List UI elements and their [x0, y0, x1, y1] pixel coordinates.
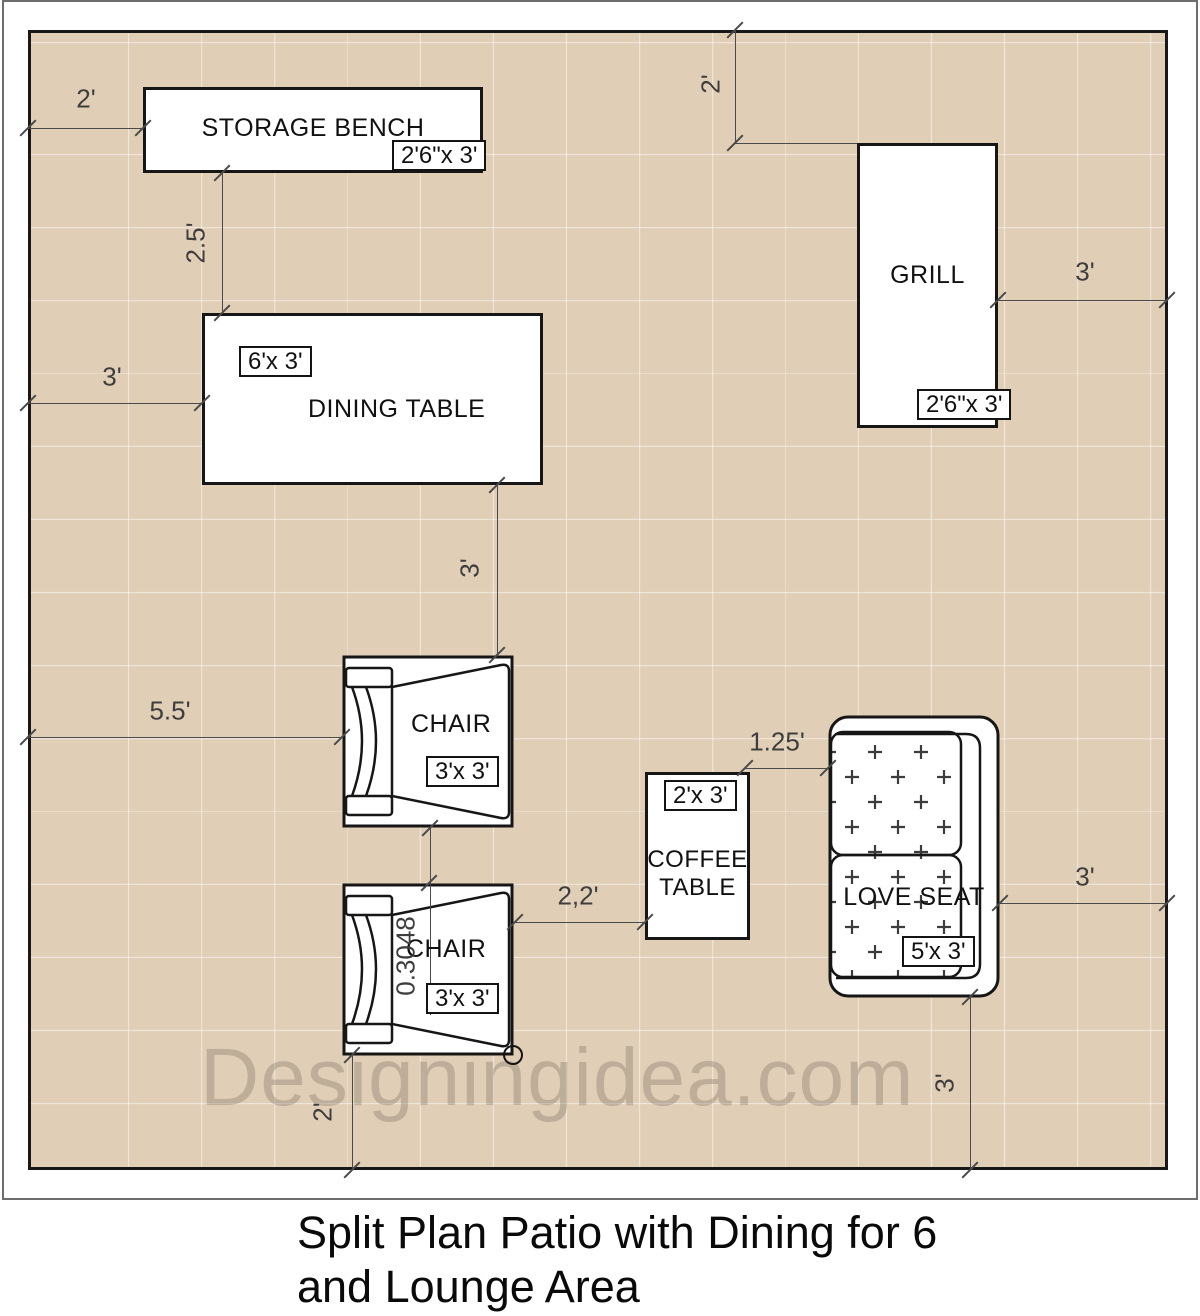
dim-bench-to-table: 2.5'	[181, 222, 212, 263]
dim-line-grill-right	[998, 300, 1167, 301]
dim-line-table-left	[28, 403, 202, 404]
plan-title-line2: and Lounge Area	[297, 1261, 640, 1312]
plan-title: Split Plan Patio with Dining for 6 and L…	[297, 1206, 937, 1314]
dim-line-chair-to-coffee	[515, 922, 645, 923]
dim-coffee-to-loveseat: 1.25'	[749, 727, 805, 758]
dim-line-coffee-to-loveseat	[745, 768, 828, 769]
dim-line-loveseat-right	[1000, 903, 1167, 904]
dim-ext-grill-top	[735, 143, 857, 144]
dim-line-bench-left	[28, 128, 143, 129]
coffee-table-label-line2: TABLE	[659, 874, 736, 901]
patio-floor-plan: Designingidea.com STORAGE BENCH 2'6"x 3'…	[0, 0, 1200, 1316]
dim-chair2-bottom: 2'	[308, 1102, 339, 1121]
love-seat-label: LOVE SEAT	[828, 883, 1000, 912]
dim-chair-to-coffee: 2,2'	[557, 881, 598, 912]
grill-label: GRILL	[857, 261, 998, 290]
dim-line-chair-left	[28, 737, 342, 738]
dim-chair-left: 5.5'	[149, 696, 190, 727]
dim-chair-gap: 0.3048	[391, 916, 422, 996]
dim-line-bench-to-table	[222, 173, 223, 313]
dim-table-to-chair: 3'	[455, 558, 486, 577]
grill-size: 2'6"x 3'	[917, 389, 1011, 420]
coffee-table-size: 2'x 3'	[664, 780, 737, 811]
coffee-table-label: COFFEE TABLE	[645, 846, 750, 902]
dim-table-left: 3'	[102, 362, 121, 393]
chair-2-swivel-mark	[503, 1045, 523, 1065]
dim-loveseat-bottom: 3'	[930, 1073, 961, 1092]
dining-table-size: 6'x 3'	[239, 346, 312, 377]
storage-bench-size: 2'6"x 3'	[392, 140, 486, 171]
dim-grill-top: 2'	[696, 74, 727, 93]
chair-1	[342, 655, 514, 828]
chair-1-size: 3'x 3'	[426, 756, 499, 787]
storage-bench-label: STORAGE BENCH	[143, 114, 483, 143]
love-seat-size: 5'x 3'	[902, 936, 975, 967]
dim-grill-right: 3'	[1075, 257, 1094, 288]
dim-line-chair2-bottom	[352, 1055, 353, 1170]
coffee-table-label-line1: COFFEE	[647, 846, 747, 873]
plan-title-line1: Split Plan Patio with Dining for 6	[297, 1207, 937, 1258]
chair-2	[342, 883, 514, 1056]
dim-line-loveseat-bottom	[970, 997, 971, 1170]
dim-line-grill-top	[735, 30, 736, 143]
dining-table-label: DINING TABLE	[308, 395, 485, 424]
dim-line-table-to-chair	[497, 485, 498, 655]
chair-2-size: 3'x 3'	[426, 983, 499, 1014]
chair-1-label: CHAIR	[411, 710, 491, 739]
dim-loveseat-right: 3'	[1075, 862, 1094, 893]
dim-bench-left: 2'	[76, 84, 95, 115]
